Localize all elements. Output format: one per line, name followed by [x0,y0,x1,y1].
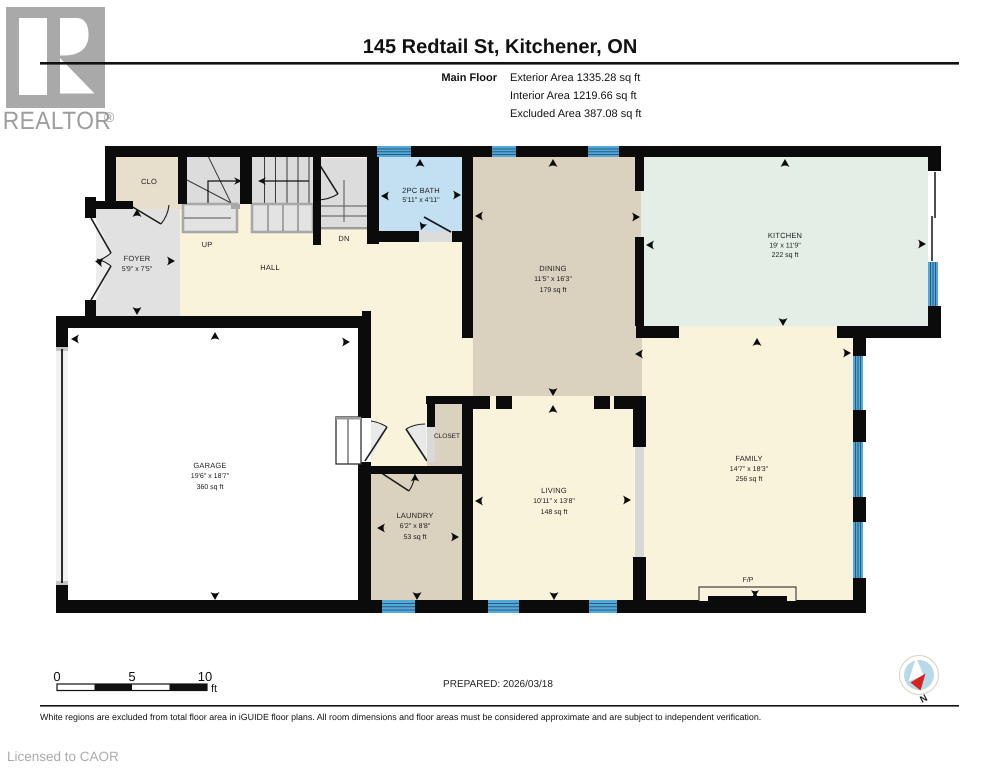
svg-text:Licensed to CAOR: Licensed to CAOR [7,749,119,764]
svg-text:DN: DN [338,234,349,243]
svg-text:11'5" x 16'3": 11'5" x 16'3" [534,276,572,283]
svg-text:Interior Area 1219.66 sq ft: Interior Area 1219.66 sq ft [510,90,637,102]
svg-text:360 sq ft: 360 sq ft [197,483,224,491]
svg-text:Exterior Area 1335.28 sq ft: Exterior Area 1335.28 sq ft [510,72,640,84]
svg-text:53 sq ft: 53 sq ft [404,533,427,541]
svg-text:19' x 11'9": 19' x 11'9" [769,243,801,250]
svg-text:Excluded Area 387.08 sq ft: Excluded Area 387.08 sq ft [510,108,641,120]
svg-text:FAMILY: FAMILY [735,454,762,463]
svg-text:LIVING: LIVING [541,486,567,495]
svg-text:GARAGE: GARAGE [193,461,226,470]
svg-text:FOYER: FOYER [124,254,151,263]
svg-text:179 sq ft: 179 sq ft [540,286,567,294]
svg-text:0: 0 [53,669,60,684]
svg-text:HALL: HALL [260,263,280,272]
svg-text:LAUNDRY: LAUNDRY [396,511,433,520]
svg-text:Main Floor: Main Floor [441,72,497,84]
svg-text:256 sq ft: 256 sq ft [736,475,763,483]
svg-text:5'9" x 7'5": 5'9" x 7'5" [122,266,153,273]
svg-text:CLO: CLO [141,177,157,186]
svg-text:®: ® [104,109,115,125]
svg-text:14'7" x 18'3": 14'7" x 18'3" [730,466,769,473]
svg-text:PREPARED: 2026/03/18: PREPARED: 2026/03/18 [443,679,553,690]
svg-text:REALTOR: REALTOR [3,107,112,135]
svg-text:148 sq ft: 148 sq ft [541,508,568,516]
svg-text:145 Redtail St, Kitchener, ON: 145 Redtail St, Kitchener, ON [363,36,638,58]
svg-text:White regions are excluded fro: White regions are excluded from total fl… [40,712,761,722]
svg-text:ft: ft [211,683,217,695]
svg-text:222 sq ft: 222 sq ft [772,251,799,259]
svg-text:10: 10 [198,669,212,684]
svg-text:5: 5 [128,669,135,684]
svg-text:5'11" x 4'11": 5'11" x 4'11" [402,197,440,204]
svg-text:CLOSET: CLOSET [434,433,460,440]
svg-text:F/P: F/P [743,576,754,584]
svg-text:2PC BATH: 2PC BATH [402,186,440,195]
svg-text:DINING: DINING [539,264,566,273]
svg-text:10'11" x 13'8": 10'11" x 13'8" [533,498,575,505]
svg-text:UP: UP [202,240,213,249]
svg-text:19'6" x 18'7": 19'6" x 18'7" [191,473,230,480]
svg-text:KITCHEN: KITCHEN [768,231,802,240]
svg-text:6'2" x 8'8": 6'2" x 8'8" [400,523,431,530]
